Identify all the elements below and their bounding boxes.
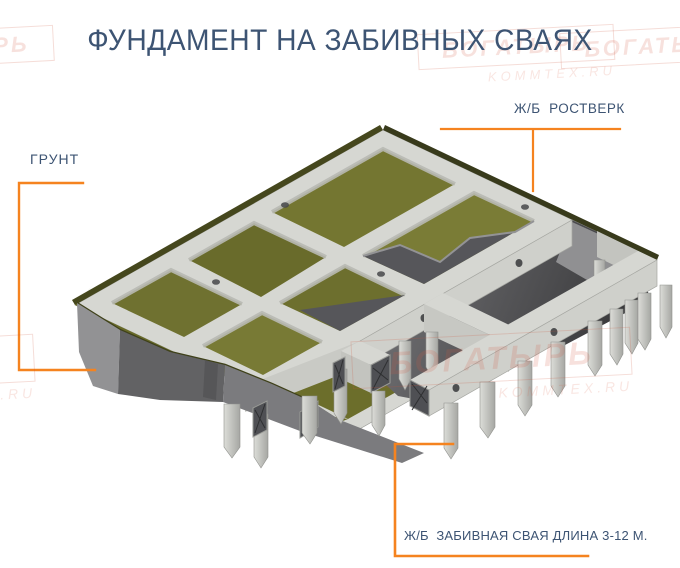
beam-hole [551,328,558,336]
pile [610,309,623,365]
pile [224,404,240,458]
pile [518,361,532,416]
pile [480,382,495,438]
infographic-page: БОГАТЫРЬ БОГАТЫРЬ KOMMTEX.RU БОГАТЫРЬ БО… [0,0,680,568]
pile [625,300,638,354]
pile [551,342,565,397]
pile [444,403,458,459]
pile [588,321,602,376]
pile [638,293,651,350]
label-driven-pile: Ж/Б ЗАБИВНАЯ СВАЯ ДЛИНА 3-12 М. [404,528,648,543]
page-title: ФУНДАМЕНТ НА ЗАБИВНЫХ СВАЯХ [20,24,659,58]
foundation-illustration [0,0,680,568]
pile [660,285,672,338]
beam-hole [453,384,460,392]
pile [399,341,411,390]
pile [372,391,385,436]
beam-hole [516,259,523,267]
label-grillage: Ж/Б РОСТВЕРК [514,101,625,116]
label-ground: ГРУНТ [30,151,79,167]
pile [302,396,317,444]
